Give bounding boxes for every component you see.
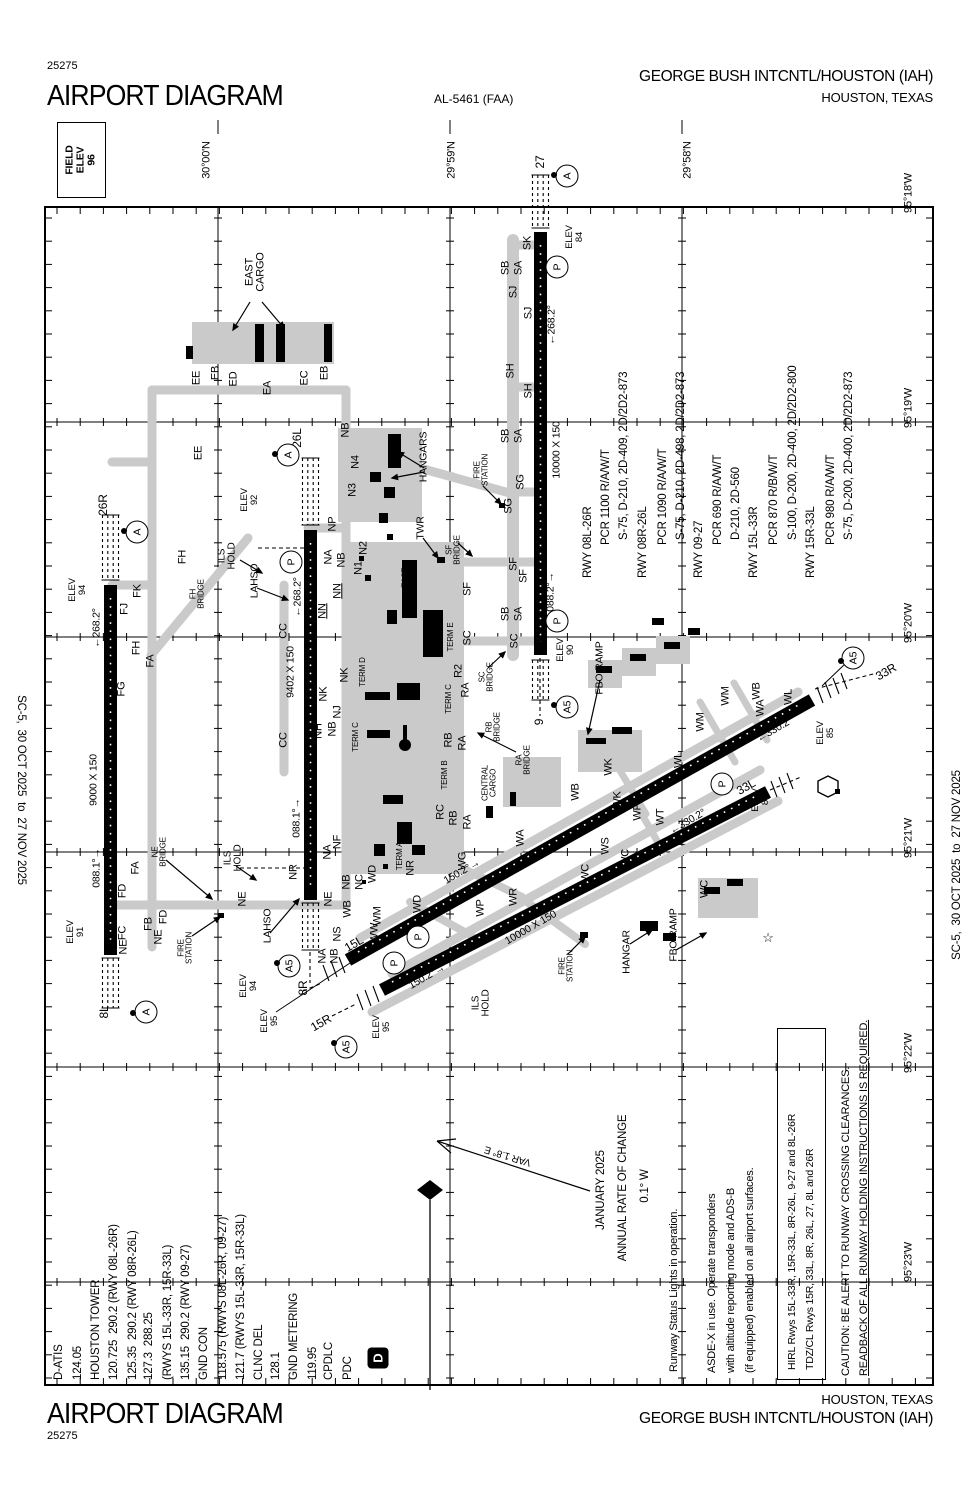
hold-point-badge-a5: A5	[842, 647, 865, 670]
map-label: SC	[462, 631, 473, 646]
comm-frequency-line: (RWYS 15L-33R, 15R-33L)	[162, 1245, 174, 1380]
comm-frequency-line: PDC	[342, 1356, 354, 1380]
longitude-label: 95°18'W	[903, 173, 914, 213]
map-label: EB	[210, 366, 221, 380]
map-label: SC BRIDGE	[479, 662, 496, 691]
map-label: EA	[262, 381, 273, 395]
runway-data-line: RWY 15L-33R	[748, 506, 760, 578]
comm-frequency-line: GND CON	[198, 1327, 210, 1380]
map-label: NP	[327, 517, 338, 532]
longitude-label: 95°23'W	[903, 1242, 914, 1282]
map-label: RA	[462, 815, 473, 830]
map-label: ELEV 90	[556, 638, 576, 662]
map-label: FD	[158, 910, 169, 924]
map-label: 9000 X 150	[89, 754, 100, 806]
map-label: FIRE STATION	[559, 950, 576, 982]
map-label: TERM C	[445, 684, 453, 713]
map-label: 10000 X 150	[503, 909, 558, 947]
map-label: ←268.2°	[547, 305, 558, 345]
comm-frequency-line: 124.05	[72, 1346, 84, 1380]
map-label: TERM A	[396, 842, 404, 871]
comm-frequency-line: 121.7 (RWYS 15L-33R, 15R-33L)	[235, 1214, 247, 1380]
map-label: NA	[317, 949, 328, 964]
map-label: FC	[117, 926, 128, 940]
map-label: N1	[353, 561, 364, 575]
map-label: NK	[339, 668, 350, 683]
map-label: EE	[191, 371, 202, 385]
map-label: ILS HOLD	[472, 990, 493, 1017]
runway-data-line: RWY 08R-26L	[637, 506, 649, 578]
map-label: WC	[699, 880, 710, 898]
map-label: EAST BRIDGE	[402, 563, 419, 592]
map-label: NE	[323, 892, 334, 907]
map-label: WB	[751, 682, 762, 699]
map-label: CENTRAL CARGO	[482, 765, 499, 801]
map-label: ILS HOLD	[218, 543, 239, 570]
map-label: NJ	[332, 705, 343, 718]
hold-point-badge-a: A	[277, 444, 300, 467]
map-label: EC	[299, 371, 310, 386]
map-label: HANGAR	[622, 930, 633, 974]
map-label: SG	[515, 474, 526, 490]
map-label: WT	[655, 809, 666, 826]
map-label: NN	[332, 583, 343, 599]
runway-data-line: RWY 15R-33L	[805, 506, 817, 578]
badge-dot	[838, 658, 844, 664]
map-label: WL	[673, 752, 684, 768]
comm-frequency-line: CPDLC	[323, 1342, 335, 1380]
annual-rate-line: 0.1° W	[640, 1169, 652, 1202]
map-label: RB BRIDGE	[486, 712, 503, 741]
magnetic-variation-label: VAR 1.8° E	[484, 1143, 533, 1167]
map-label: ←330.2°	[755, 715, 795, 744]
map-label: 15R	[309, 1012, 334, 1034]
map-label: NA	[323, 550, 334, 565]
lighting-note-line: HIRL Rwys 15L-33R, 15R-33L, 8R-26L, 9-27…	[786, 1114, 798, 1370]
map-label: 8R	[297, 981, 309, 996]
hold-point-badge-a: A	[135, 1001, 158, 1024]
map-label: NB	[329, 949, 340, 964]
map-label: ELEV 94	[239, 974, 259, 998]
map-labels-layer: EAST CARGOEEEBEDEAECEBEE26RELEV 94←268.2…	[0, 0, 978, 1500]
runway-data-line: PCR 1100 R/A/W/T	[600, 449, 612, 545]
map-label: EAST CARGO	[245, 252, 268, 291]
map-label: N3	[347, 483, 358, 497]
longitude-label: 95°22'W	[903, 1033, 914, 1073]
map-label: ELEV 92	[240, 488, 260, 512]
map-label: NN	[317, 603, 328, 619]
map-label: NR	[288, 864, 299, 880]
map-label: FK	[132, 584, 143, 598]
longitude-label: 95°21'W	[903, 818, 914, 858]
hold-point-badge-p: P	[407, 926, 430, 949]
map-label: TERM C	[352, 722, 360, 751]
annual-rate-line: JANUARY 2025	[596, 1150, 608, 1230]
map-label: 8L	[98, 1006, 110, 1019]
map-label: ←268.2°	[92, 608, 103, 648]
asdex-note-line: (if equipped) enabled on all airport sur…	[744, 1168, 756, 1373]
map-label: WA	[755, 700, 766, 717]
comm-frequency-line: GND METERING	[288, 1293, 300, 1380]
map-label: ELEV 84	[565, 225, 585, 249]
map-label: FJ	[119, 603, 130, 615]
comm-frequency-line: HOUSTON TOWER	[90, 1280, 102, 1380]
map-label: NC	[354, 874, 365, 890]
airport-diagram-page: 25275 AIRPORT DIAGRAM AL-5461 (FAA) GEOR…	[0, 0, 978, 1500]
map-label: HANGARS	[419, 432, 430, 483]
comm-frequency-line: 127.3 288.25	[143, 1312, 155, 1380]
map-label: SK	[522, 236, 533, 250]
hold-point-badge-a5: A5	[556, 696, 579, 719]
datalink-symbol: D	[368, 1348, 389, 1369]
map-label: ED	[228, 372, 239, 387]
map-label: ELEV 94	[68, 578, 88, 602]
map-label: WG	[457, 852, 468, 871]
map-label: EB	[319, 366, 330, 380]
badge-dot	[331, 1040, 337, 1046]
map-label: WS	[600, 837, 611, 854]
comm-frequency-line: CLNC DEL	[253, 1325, 265, 1380]
latitude-label: 29°59'N	[446, 141, 457, 179]
hold-point-badge-p: P	[546, 256, 569, 279]
map-label: FIRE STATION	[474, 454, 491, 486]
map-label: NE BRIDGE	[152, 837, 169, 866]
map-label: FH	[131, 641, 142, 655]
lighting-note-line: TDZ/CL Rwys 15R, 33L, 8R, 26L, 27, 8L an…	[804, 1149, 816, 1370]
runway-data-line: RWY 09-27	[693, 521, 705, 578]
map-label: ←268.2°	[293, 577, 304, 617]
map-label: SA	[513, 261, 524, 275]
map-label: SC	[509, 634, 520, 649]
map-label: RA	[457, 736, 468, 751]
map-label: 088.2°→	[546, 572, 557, 612]
map-label: TERM E	[447, 622, 455, 651]
runway-data-line: S-75, D-210, 2D-409, 2D/2D2-873	[618, 372, 630, 540]
hold-point-badge-p: P	[711, 773, 734, 796]
map-label: WD	[367, 865, 378, 883]
map-label: FA	[145, 654, 156, 667]
hold-point-badge-a: A	[126, 521, 149, 544]
map-label: SF BRIDGE	[446, 535, 463, 564]
map-label: RA BRIDGE	[516, 745, 533, 774]
map-label: ELEV 95	[260, 1009, 280, 1033]
runway-data-line: S-75, D-200, 2D-400, 2D/2D2-873	[843, 372, 855, 540]
map-label: WA	[515, 830, 526, 847]
runway-data-line: S-75, D-210, 2D-498, 2D/2D2-873	[675, 372, 687, 540]
map-label: FBO RAMP	[595, 641, 606, 694]
map-label: NB	[327, 722, 338, 737]
map-label: CC	[278, 732, 289, 748]
map-label: NB	[336, 553, 347, 568]
caution-note-line: READBACK OF ALL RUNWAY HOLDING INSTRUCTI…	[858, 1020, 870, 1376]
longitude-label: 95°19'W	[903, 388, 914, 428]
map-label: 33R	[874, 661, 899, 683]
map-label: SA	[513, 429, 524, 443]
map-label: 12001 X 150	[532, 826, 587, 864]
map-label: FD	[117, 884, 128, 898]
map-label: RB	[448, 811, 459, 826]
map-label: RA	[460, 683, 471, 698]
comm-frequency-line: 125.35 290.2 (RWY 08R-26L)	[127, 1230, 139, 1380]
map-label: CC	[278, 623, 289, 639]
map-label: SA	[513, 607, 524, 621]
badge-dot	[121, 528, 127, 534]
map-label: ILS HOLD	[224, 845, 245, 872]
map-label: WP	[475, 899, 486, 916]
badge-dot	[551, 172, 557, 178]
map-label: WK	[603, 758, 614, 775]
map-label: WC	[580, 864, 591, 882]
map-label: FIRE STATION	[178, 932, 195, 964]
map-label: NR	[405, 860, 416, 876]
map-label: FBO RAMP	[669, 908, 680, 961]
runway-data-line: S-100, D-200, 2D-400, 2D/2D2-800	[787, 365, 799, 540]
caution-note-line: CAUTION: BE ALERT TO RUNWAY CROSSING CLE…	[840, 1067, 852, 1376]
hold-point-badge-a: A	[556, 165, 579, 188]
badge-dot	[272, 451, 278, 457]
comm-frequency-line: 119.95	[307, 1347, 319, 1380]
runway-data-line: RWY 08L-26R	[582, 506, 594, 578]
map-label: WM	[720, 686, 731, 705]
runway-status-lights-note: Runway Status Lights in operation.	[668, 1209, 680, 1372]
hold-point-badge-a5: A5	[335, 1036, 358, 1059]
map-label: ELEV 87	[751, 788, 771, 812]
map-label: WB	[342, 900, 353, 917]
map-label: 15L	[342, 934, 365, 955]
runway-data-line: PCR 980 R/A/W/T	[825, 455, 837, 545]
comm-frequency-line: 128.1	[270, 1352, 282, 1380]
map-label: N4	[350, 455, 361, 469]
map-label: NS	[332, 927, 343, 942]
map-label: NE	[118, 940, 129, 955]
map-label: WB	[570, 783, 581, 800]
map-label: TERM D	[359, 657, 367, 686]
badge-dot	[130, 1010, 136, 1016]
map-label: SH	[505, 364, 516, 379]
map-label: 10000 X 150	[552, 421, 563, 478]
asdex-note-line: ASDE-X in use. Operate transponders	[706, 1194, 718, 1374]
map-label: SJ	[508, 286, 519, 298]
map-label: WK	[612, 791, 623, 808]
map-label: WP	[632, 803, 643, 820]
map-label: SG	[503, 498, 514, 514]
comm-frequency-line: 135.15 290.2 (RWY 09-27)	[180, 1245, 192, 1380]
map-label: RC	[435, 804, 446, 820]
map-label: FH	[177, 550, 188, 564]
map-label: ←330.2°	[668, 807, 708, 836]
map-label: 9402 X 150	[286, 646, 297, 698]
map-label: NH	[313, 723, 324, 739]
hold-point-badge-p: P	[383, 952, 406, 975]
badge-dot	[551, 702, 557, 708]
map-label: FA	[130, 861, 141, 874]
map-label: 26R	[97, 494, 109, 515]
map-label: NE	[237, 892, 248, 907]
map-label: WC	[620, 849, 631, 867]
map-label: ELEV 85	[816, 721, 836, 745]
comm-frequency-line: 120.725 290.2 (RWY 08L-26R)	[108, 1224, 120, 1380]
map-label: TWR	[416, 516, 427, 539]
comm-frequency-line: 118.575 (RWYS 08L-26R, 09-27)	[217, 1217, 229, 1380]
map-label: SB	[500, 261, 511, 275]
map-label: 9	[533, 719, 545, 725]
map-label: WM	[695, 712, 706, 731]
map-label: NE	[153, 930, 164, 945]
map-label: NB	[340, 423, 351, 438]
map-label: LAHSO	[263, 909, 274, 944]
map-label: 088.1°→	[92, 848, 103, 888]
hold-point-badge-a5: A5	[278, 955, 301, 978]
map-label: FG	[116, 682, 127, 697]
map-label: SB	[500, 607, 511, 621]
map-label: 150.2°→	[407, 962, 447, 991]
map-label: ☆	[762, 931, 773, 945]
map-label: RB	[443, 733, 454, 748]
latitude-label: 30°00'N	[201, 141, 212, 179]
annual-rate-line: ANNUAL RATE OF CHANGE	[618, 1115, 630, 1262]
map-label: WL	[783, 689, 794, 705]
hold-point-badge-p: P	[546, 610, 569, 633]
longitude-label: 95°20'W	[903, 603, 914, 643]
map-label: ELEV 95	[372, 1015, 392, 1039]
runway-data-line: PCR 690 R/A/W/T	[712, 455, 724, 545]
map-label: NB	[341, 875, 352, 890]
runway-data-line: PCR 1090 R/A/W/T	[657, 449, 669, 546]
hold-point-badge-p: P	[280, 551, 303, 574]
map-label: LAHSO	[250, 564, 261, 599]
runway-data-line: PCR 870 R/B/W/T	[768, 455, 780, 545]
badge-dot	[274, 960, 280, 966]
map-label: SH	[523, 384, 534, 399]
map-label: SF	[518, 569, 529, 583]
map-label: ELEV 91	[66, 920, 86, 944]
map-label: N2	[358, 541, 369, 555]
latitude-label: 29°58'N	[682, 141, 693, 179]
map-label: R2	[453, 664, 464, 678]
runway-data-line: D-210, 2D-560	[730, 467, 742, 540]
map-label: NF	[332, 835, 343, 849]
map-label: FH BRIDGE	[190, 579, 207, 608]
map-label: EE	[193, 446, 204, 460]
map-label: SJ	[523, 307, 534, 319]
comm-frequency-line: D-ATIS	[53, 1344, 65, 1380]
map-label: 27	[534, 156, 546, 169]
map-label: NA	[322, 845, 333, 860]
asdex-note-line: with altitude reporting mode and ADS-B	[725, 1188, 737, 1373]
map-label: WW	[369, 923, 380, 943]
map-label: NK	[318, 687, 329, 702]
map-label: SF	[462, 582, 473, 596]
map-label: WR	[508, 888, 519, 906]
map-label: 088.1°→	[292, 798, 303, 838]
map-label: TERM B	[441, 760, 449, 789]
map-label: WD	[412, 895, 423, 913]
map-label: SB	[500, 429, 511, 443]
